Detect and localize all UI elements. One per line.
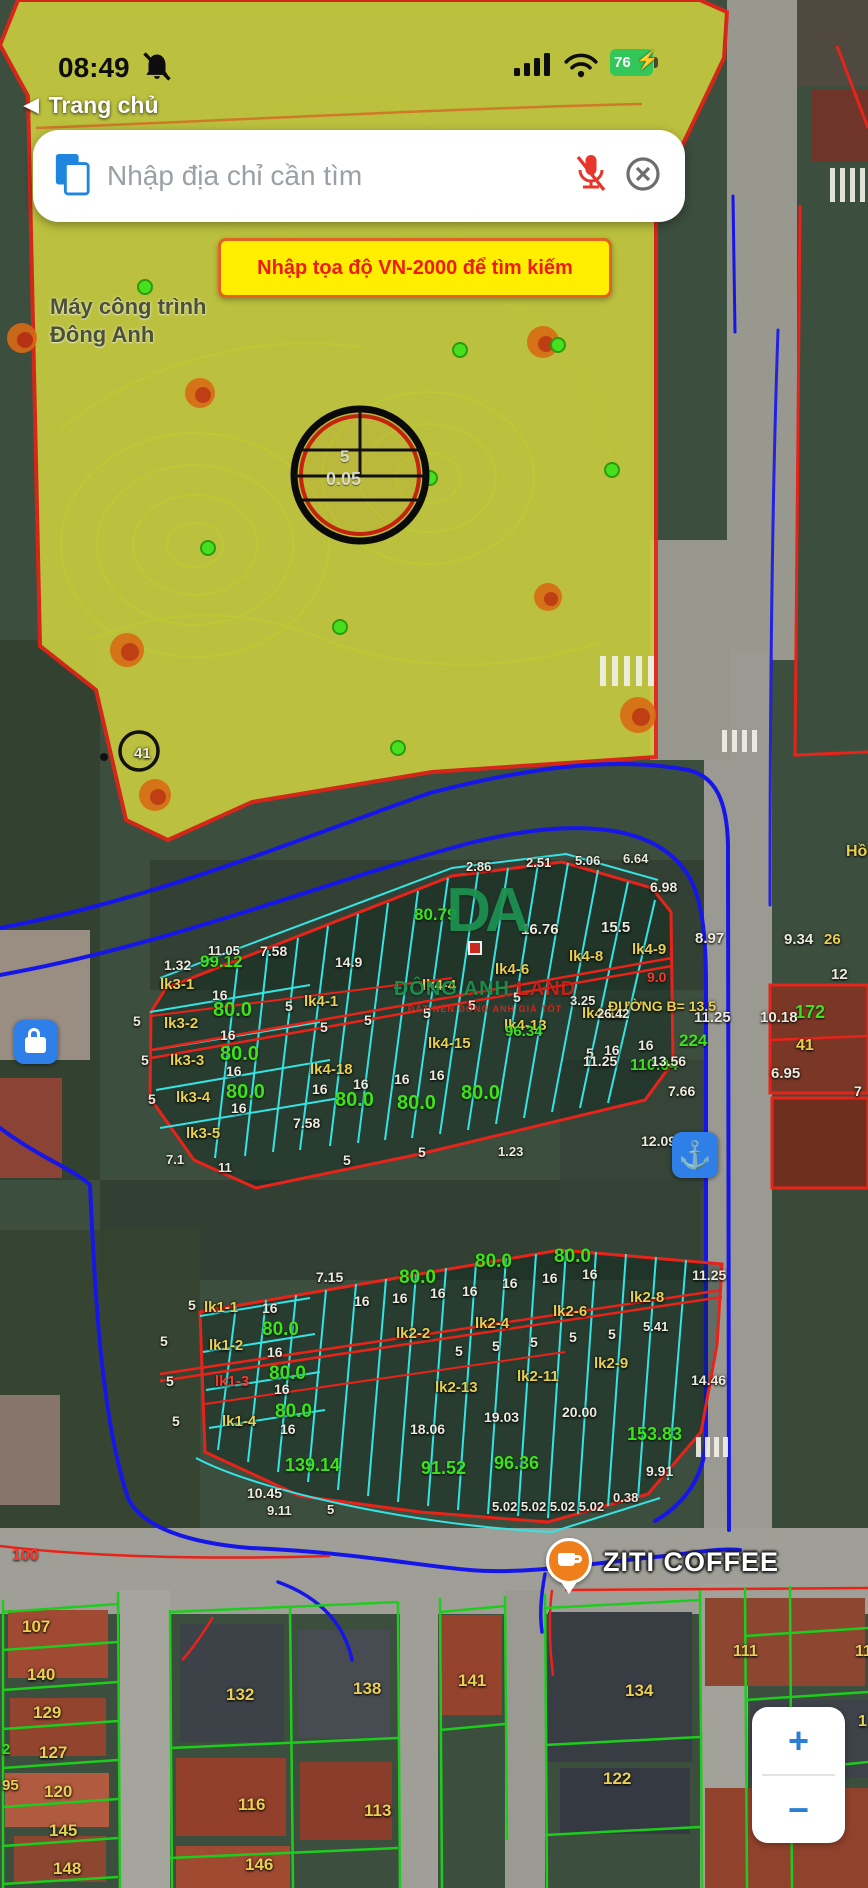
vn2000-banner[interactable]: Nhập tọa độ VN-2000 để tìm kiếm [218, 238, 612, 298]
banner-text: Nhập tọa độ VN-2000 để tìm kiếm [257, 257, 573, 280]
wifi-icon [562, 49, 600, 84]
bell-muted-icon [140, 50, 174, 89]
clear-icon[interactable] [623, 154, 663, 199]
search-input[interactable] [105, 159, 563, 193]
paste-icon[interactable] [53, 151, 91, 202]
back-label: Trang chủ [49, 92, 159, 119]
zoom-in-button[interactable]: + [752, 1707, 845, 1774]
anchor-poi-icon[interactable]: ⚓ [672, 1132, 718, 1178]
measure-circle-marker [294, 409, 426, 541]
mic-muted-icon[interactable] [573, 153, 609, 200]
signal-bars-icon [512, 50, 554, 83]
back-nav[interactable]: ◀ Trang chủ [24, 92, 159, 119]
search-bar [33, 130, 685, 222]
lock-poi-icon[interactable] [14, 1020, 58, 1064]
battery-icon: 76 ⚡ [610, 49, 660, 76]
status-time: 08:49 [58, 52, 130, 84]
app-screen: Máy công trìnhĐông Anh4150.05Hồ1.3299.12… [0, 0, 868, 1888]
zoom-control: + − [752, 1707, 845, 1843]
back-chevron-icon: ◀ [24, 94, 39, 117]
charging-bolt-icon: ⚡ [636, 50, 658, 71]
zoom-out-button[interactable]: − [752, 1776, 845, 1843]
coffee-pin-icon[interactable] [546, 1538, 596, 1588]
battery-percent: 76 [614, 54, 631, 71]
